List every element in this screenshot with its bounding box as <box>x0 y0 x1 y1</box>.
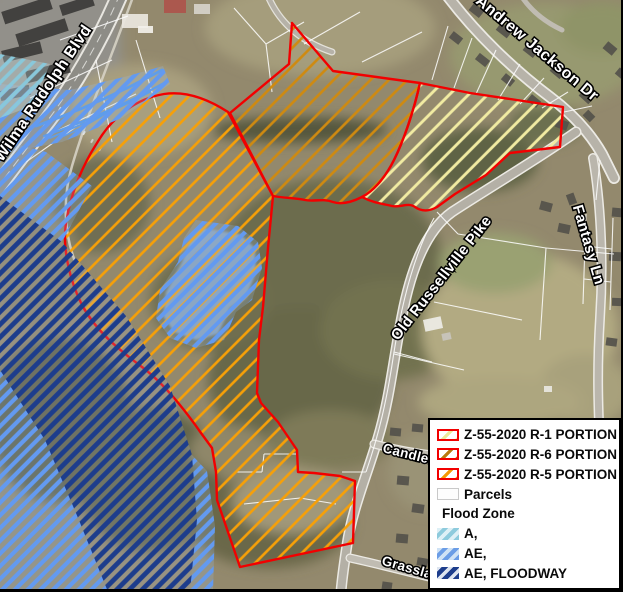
legend-label: Z-55-2020 R-5 PORTION <box>464 467 617 482</box>
legend-row-r6: Z-55-2020 R-6 PORTION <box>437 445 613 464</box>
legend-row-flood-floodway: AE, FLOODWAY <box>437 564 613 583</box>
building-footprint <box>138 26 153 33</box>
legend-swatch-zone-r1 <box>437 429 459 441</box>
building-footprint <box>390 428 402 437</box>
legend-row-r1: Z-55-2020 R-1 PORTION <box>437 425 613 444</box>
legend-swatch-flood-a <box>437 528 459 540</box>
legend-label: A, <box>464 526 478 541</box>
building-footprint <box>164 0 186 13</box>
building-footprint <box>544 386 552 392</box>
building-footprint <box>605 337 617 346</box>
legend-swatch-flood-floodway <box>437 567 459 579</box>
legend-label: AE, <box>464 546 487 561</box>
building-footprint <box>122 14 148 28</box>
legend-row-flood-ae: AE, <box>437 544 613 563</box>
building-footprint <box>612 207 621 217</box>
legend-row-r5: Z-55-2020 R-5 PORTION <box>437 465 613 484</box>
legend-swatch-parcels <box>437 488 459 500</box>
map-legend: Z-55-2020 R-1 PORTION Z-55-2020 R-6 PORT… <box>428 418 621 590</box>
building-footprint <box>411 503 424 514</box>
legend-heading-flood-zone: Flood Zone <box>442 506 515 521</box>
building-footprint <box>194 4 210 14</box>
building-footprint <box>396 533 409 543</box>
legend-row-flood-a: A, <box>437 524 613 543</box>
legend-swatch-zone-r6 <box>437 448 459 460</box>
legend-label: AE, FLOODWAY <box>464 566 567 581</box>
legend-row-parcels: Parcels <box>437 485 613 504</box>
legend-label: Z-55-2020 R-1 PORTION <box>464 427 617 442</box>
legend-swatch-zone-r5 <box>437 468 459 480</box>
building-footprint <box>609 252 621 262</box>
building-footprint <box>612 298 621 306</box>
building-footprint <box>412 424 424 433</box>
legend-label: Z-55-2020 R-6 PORTION <box>464 447 617 462</box>
building-footprint <box>397 475 410 485</box>
legend-swatch-flood-ae <box>437 548 459 560</box>
legend-label: Parcels <box>464 487 512 502</box>
map-viewport[interactable]: Wilma Rudolph Blvd Andrew Jackson Dr Old… <box>0 0 623 592</box>
legend-row-flood-zone-heading: Flood Zone <box>437 504 613 523</box>
